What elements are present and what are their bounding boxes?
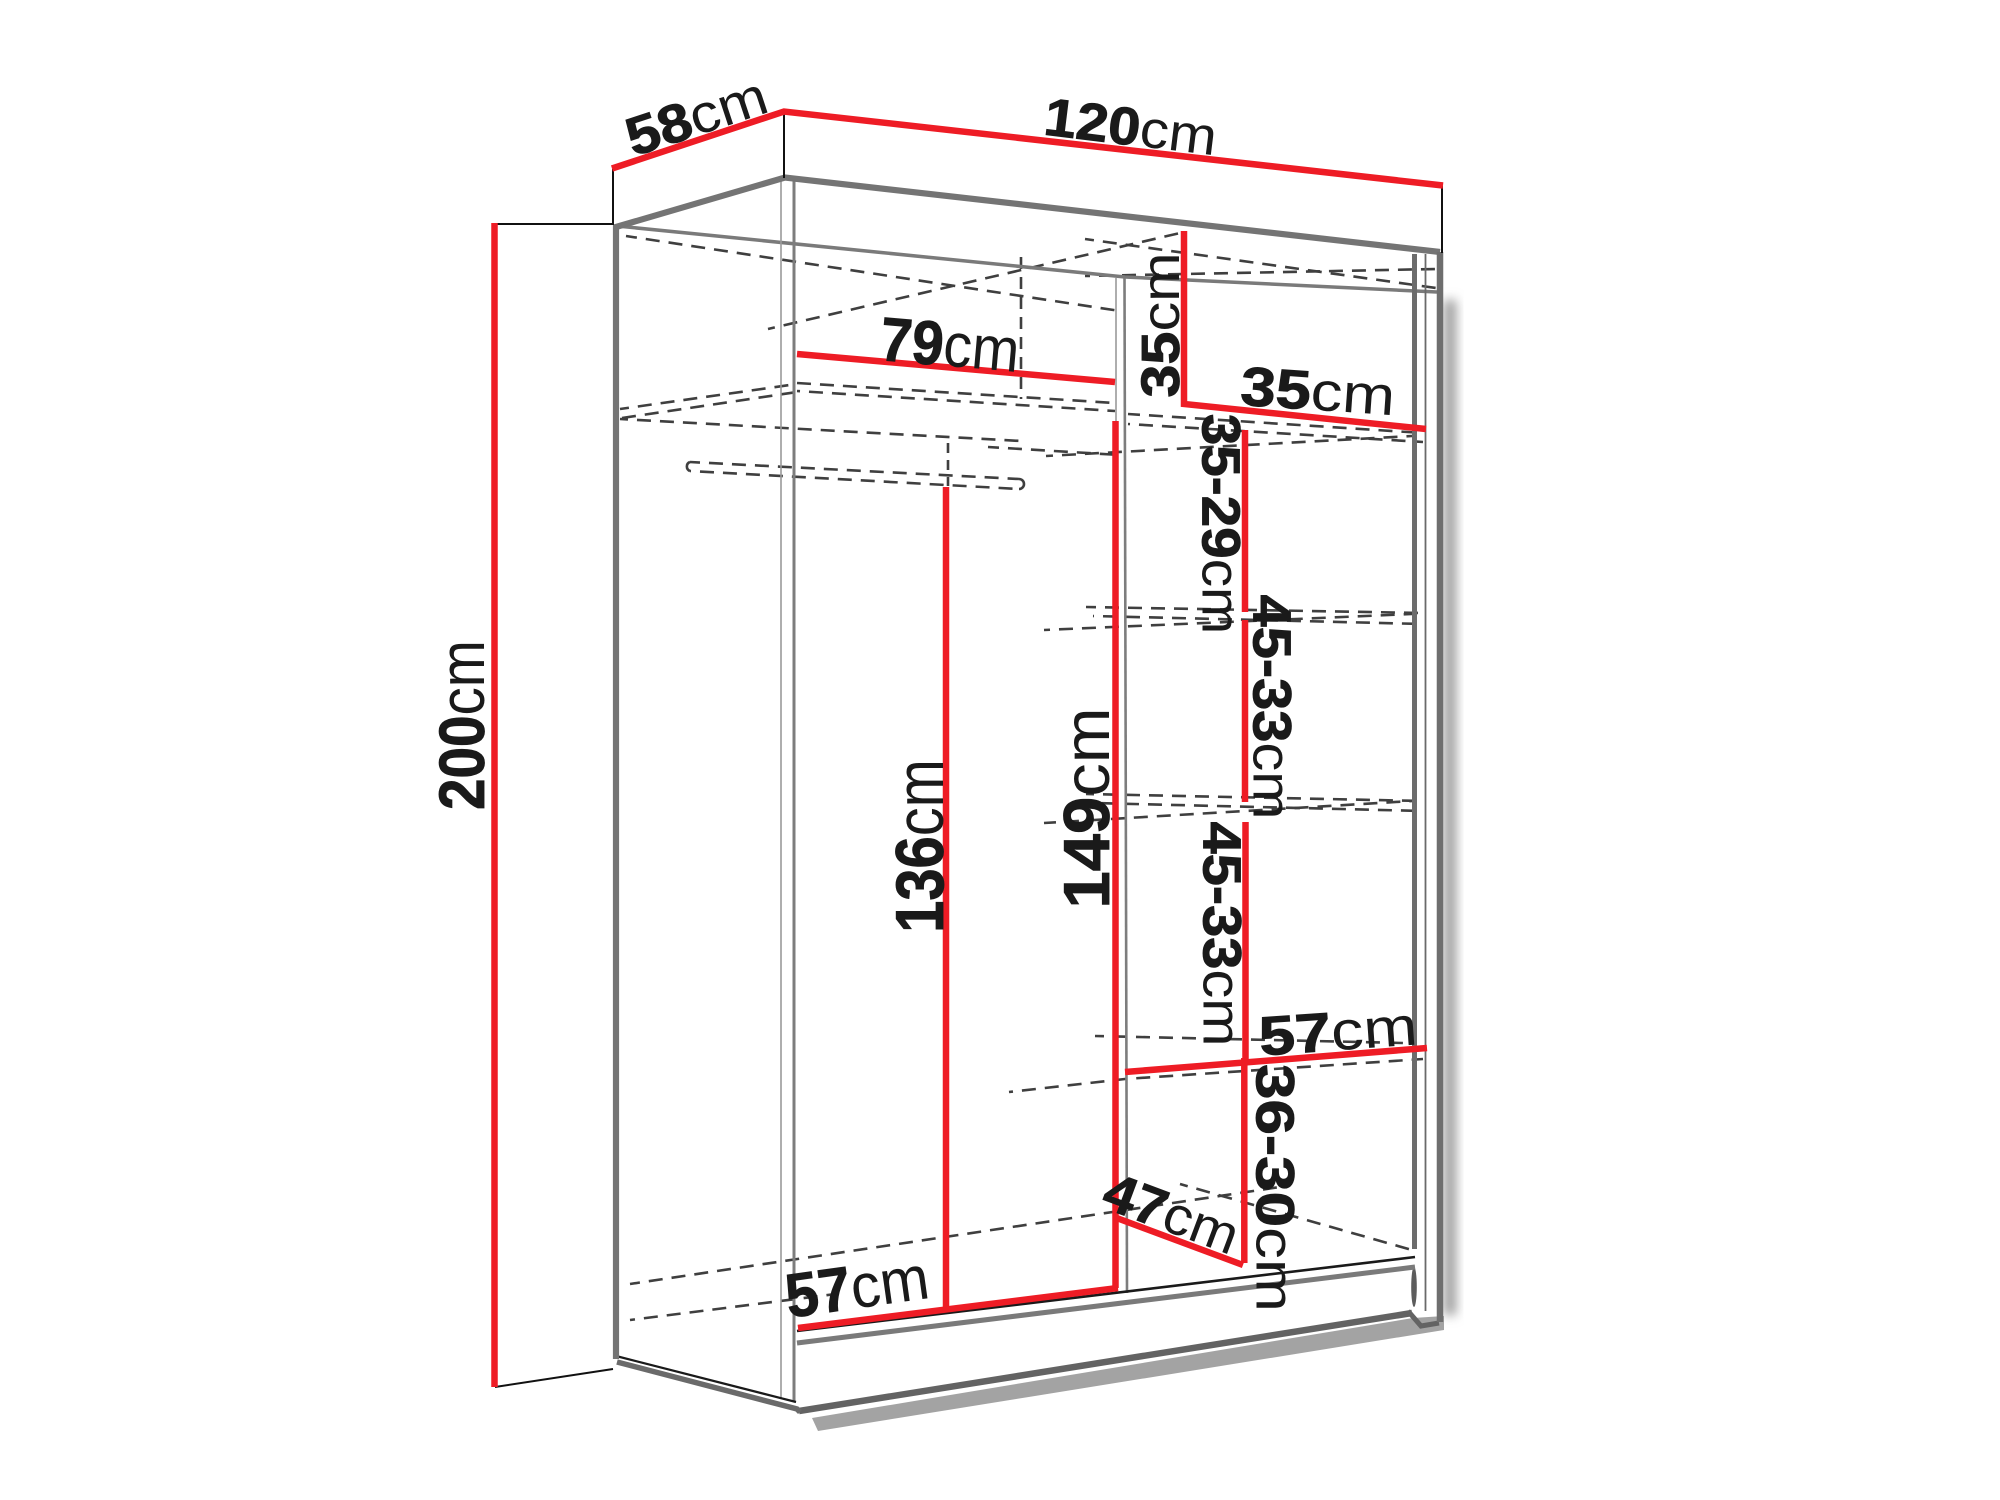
svg-text:57cm: 57cm [1257,995,1420,1067]
svg-text:35cm: 35cm [1131,252,1191,397]
svg-text:149cm: 149cm [1050,708,1123,909]
svg-text:200cm: 200cm [426,640,498,810]
svg-text:45-33cm: 45-33cm [1192,822,1253,1047]
svg-text:36-30cm: 36-30cm [1245,1064,1305,1312]
svg-text:136cm: 136cm [883,759,958,932]
svg-text:45-33cm: 45-33cm [1242,595,1303,820]
svg-text:35cm: 35cm [1239,355,1398,428]
svg-text:79cm: 79cm [877,304,1022,386]
svg-text:120cm: 120cm [1041,87,1220,167]
svg-text:58cm: 58cm [618,66,775,169]
